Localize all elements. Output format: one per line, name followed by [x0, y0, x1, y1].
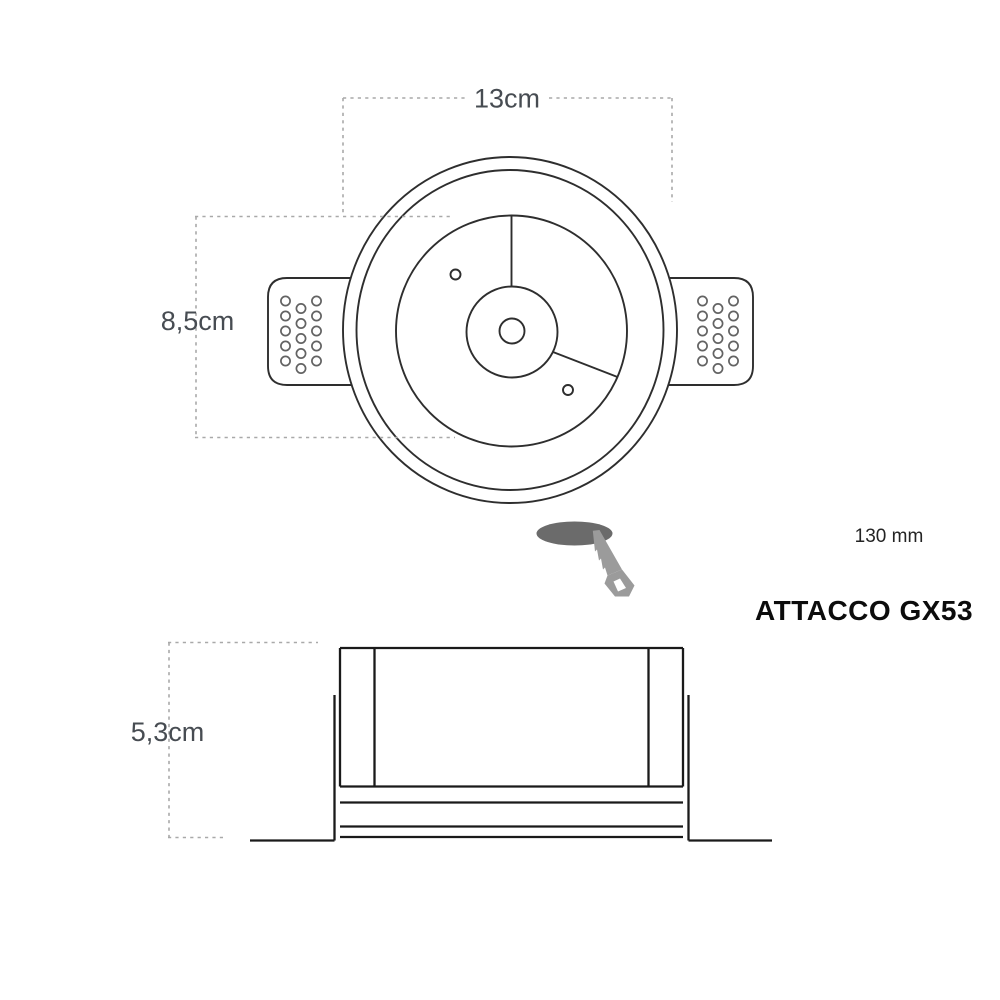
dim-height-label: 8,5cm — [161, 306, 235, 336]
cutout-icon — [537, 522, 635, 597]
side-view — [168, 643, 772, 841]
technical-drawing-canvas: 13cm 8,5cm 5,3cm 130 mm ATTACCO GX53 — [0, 0, 1000, 1000]
cutout-diameter-label: 130 mm — [855, 526, 924, 547]
dim-depth-label: 5,3cm — [131, 717, 205, 747]
saw-icon — [593, 530, 635, 597]
socket-label: ATTACCO GX53 — [755, 595, 973, 626]
dim-width-label: 13cm — [474, 84, 540, 114]
drawing-svg: 13cm 8,5cm 5,3cm 130 mm ATTACCO GX53 — [0, 0, 1000, 1000]
spring-bracket-right — [669, 278, 753, 385]
top-view — [195, 98, 753, 503]
